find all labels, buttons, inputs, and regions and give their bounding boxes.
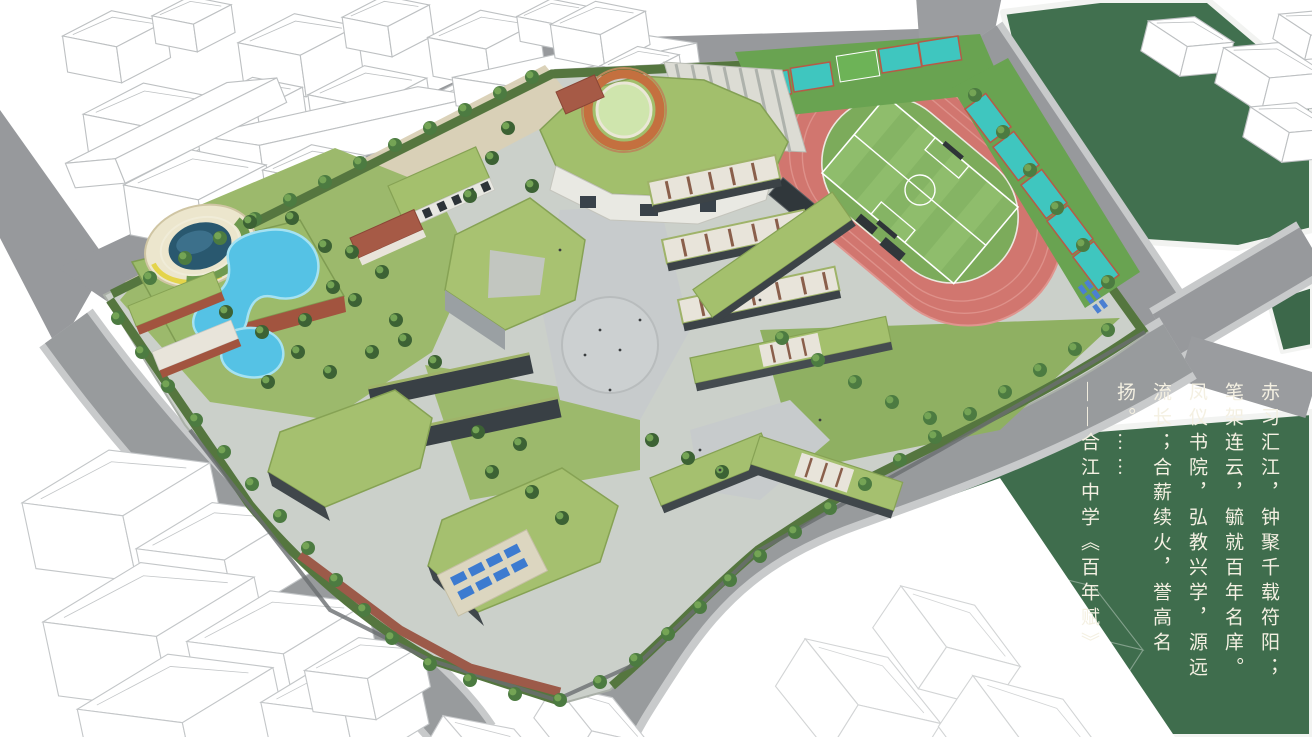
inner-courtyard (488, 250, 545, 298)
practice-field (836, 50, 880, 82)
court (918, 36, 961, 66)
court (790, 62, 833, 92)
gym-dome (597, 83, 651, 137)
masterplan-page: 赤习汇江，钟聚千载符阳； 笔架连云，毓就百年名庠。 凤仪书院，弘教兴学，源远 流… (0, 0, 1312, 737)
campus-fu-inscription: 赤习汇江，钟聚千载符阳； 笔架连云，毓就百年名庠。 凤仪书院，弘教兴学，源远 流… (1070, 382, 1286, 717)
gym-window (580, 196, 596, 208)
court (878, 43, 921, 73)
circular-plaza (562, 297, 658, 393)
